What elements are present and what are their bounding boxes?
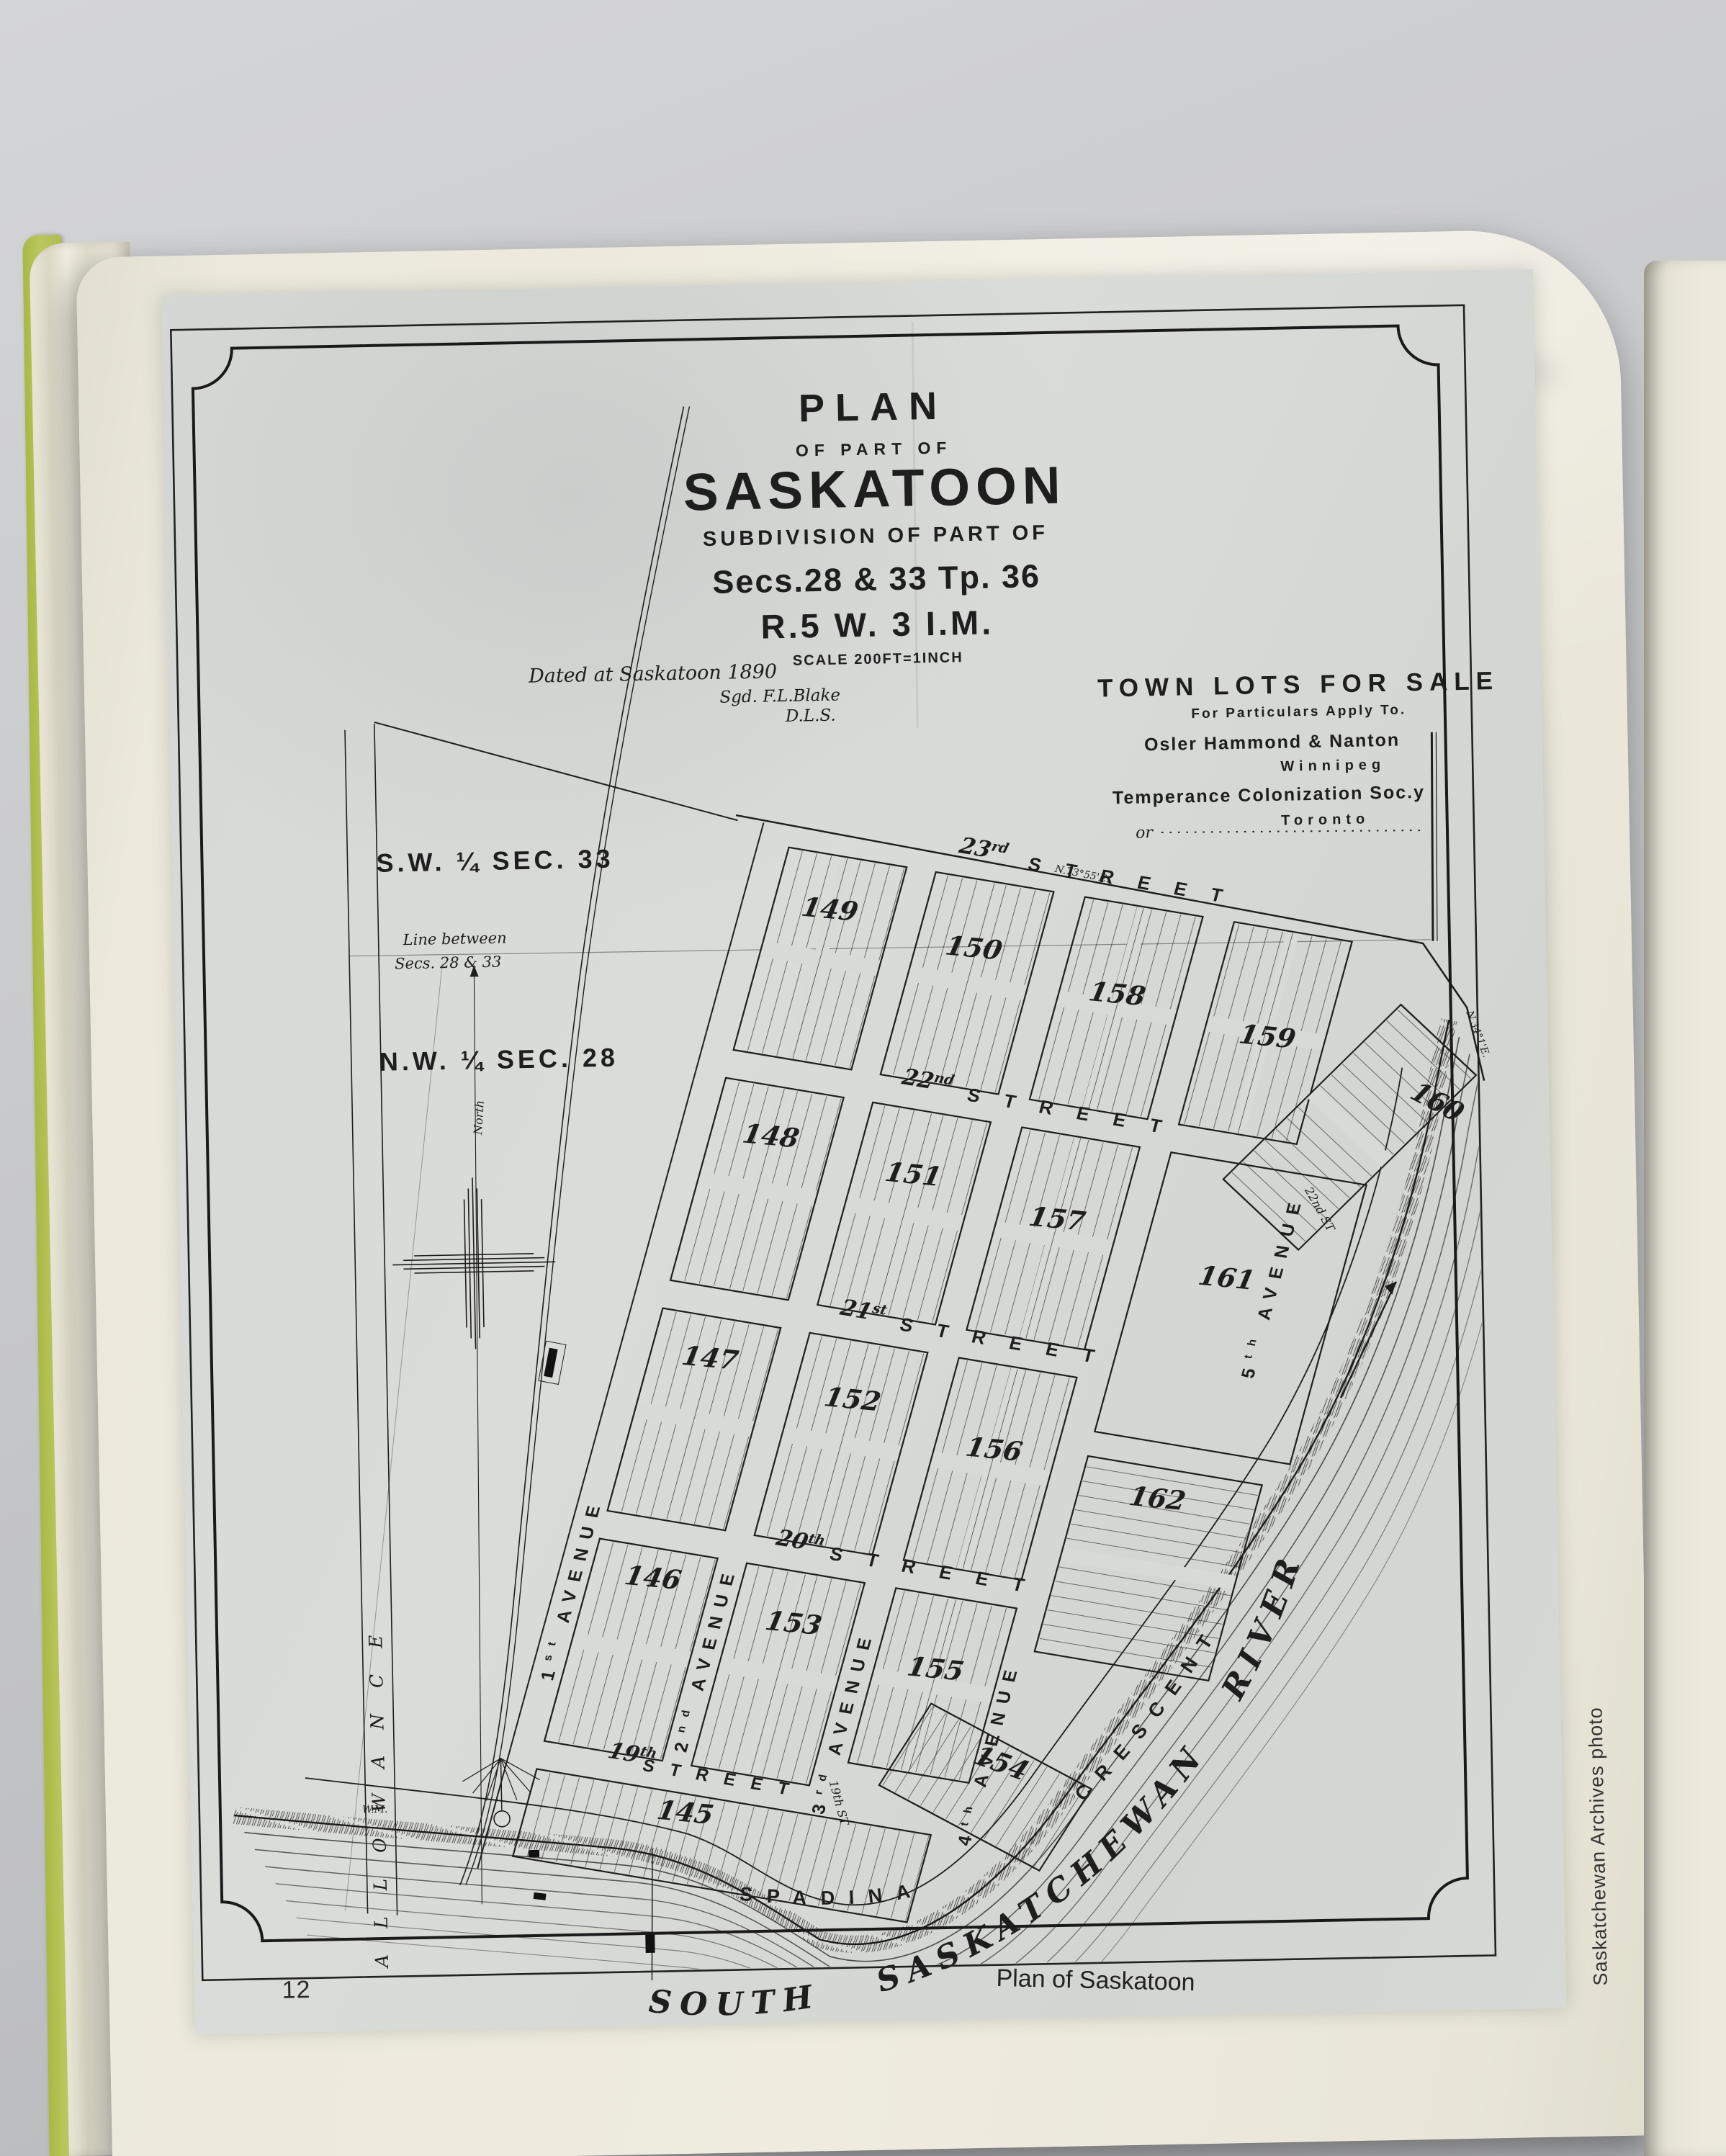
- block-150: [881, 872, 1054, 1095]
- map-dated: Dated at Saskatoon 1890: [528, 660, 777, 688]
- sale-city-1: Winnipeg: [1280, 757, 1385, 775]
- block-number-147: 147: [679, 1339, 741, 1375]
- sale-or: or: [1136, 824, 1154, 842]
- map-signed: Sgd. F.L.Blake: [719, 686, 840, 706]
- map-dls: D.L.S.: [785, 706, 836, 726]
- sale-city-2: Toronto: [1281, 811, 1370, 828]
- map-title-city: SASKATOON: [683, 456, 1066, 521]
- block-number-145: 145: [655, 1794, 716, 1830]
- block-149: [734, 848, 907, 1070]
- map-title-range: R.5 W. 3 I.M.: [760, 603, 994, 645]
- quarter-line: [327, 964, 460, 1911]
- block-number-150: 150: [943, 930, 1004, 966]
- label-line-between-1: Line between: [402, 929, 506, 948]
- map-canvas: 1491501581591601481511571611471521561621…: [161, 269, 1566, 2034]
- block-number-162: 162: [1126, 1481, 1188, 1517]
- block-151: [817, 1102, 991, 1325]
- sale-agent-2: Temperance Colonization Soc.y: [1113, 782, 1425, 808]
- label-line-between-2: Secs. 28 & 33: [395, 953, 502, 973]
- block-number-159: 159: [1236, 1018, 1298, 1054]
- book-page: 1491501581591601481511571611471521561621…: [76, 228, 1654, 2156]
- photo-credit: Saskatchewan Archives photo: [1583, 1625, 1612, 1986]
- sale-agent-1: Osler Hammond & Nanton: [1144, 730, 1401, 755]
- book-photo: 1491501581591601481511571611471521561621…: [0, 0, 1726, 2156]
- block-number-157: 157: [1026, 1200, 1088, 1236]
- block-number-158: 158: [1087, 976, 1149, 1012]
- block-number-153: 153: [763, 1604, 824, 1640]
- label-north: North: [471, 1100, 486, 1136]
- block-number-161: 161: [1196, 1259, 1258, 1295]
- street-23rd: 23rd: [956, 832, 1011, 866]
- page-number: 12: [282, 1976, 311, 2005]
- block-number-156: 156: [963, 1431, 1025, 1467]
- sale-heading: TOWN LOTS FOR SALE: [1097, 667, 1500, 703]
- map-scale: SCALE 200FT=1INCH: [793, 650, 963, 669]
- map-title-sub1: OF PART OF: [796, 438, 953, 459]
- block-157: [966, 1128, 1140, 1350]
- block-number-148: 148: [740, 1118, 802, 1154]
- street-grid: 1491501581591601481511571611471521561621…: [449, 796, 1527, 1995]
- map-title-sub2: SUBDIVISION OF PART OF: [703, 521, 1049, 551]
- sale-sub: For Particulars Apply To.: [1191, 702, 1406, 722]
- block-number-151: 151: [883, 1156, 945, 1192]
- label-nw-sec28: N.W. ¼ SEC. 28: [379, 1043, 619, 1077]
- block-number-155: 155: [904, 1650, 966, 1686]
- facing-page-edge: [1644, 261, 1726, 2156]
- map-title-plan: PLAN: [799, 385, 948, 431]
- label-sw-sec33: S.W. ¼ SEC. 33: [376, 844, 614, 878]
- block-number-152: 152: [822, 1381, 884, 1417]
- map-title-secs: Secs.28 & 33 Tp. 36: [712, 557, 1041, 601]
- block-number-146: 146: [622, 1559, 684, 1595]
- block-156: [904, 1357, 1077, 1580]
- label-wm: W.M.: [362, 1804, 387, 1816]
- street-23rd-word: STREET: [1026, 853, 1249, 911]
- block-152: [755, 1333, 928, 1555]
- map-scan-area: 1491501581591601481511571611471521561621…: [161, 269, 1566, 2034]
- block-148: [670, 1078, 844, 1301]
- block-number-149: 149: [799, 891, 861, 927]
